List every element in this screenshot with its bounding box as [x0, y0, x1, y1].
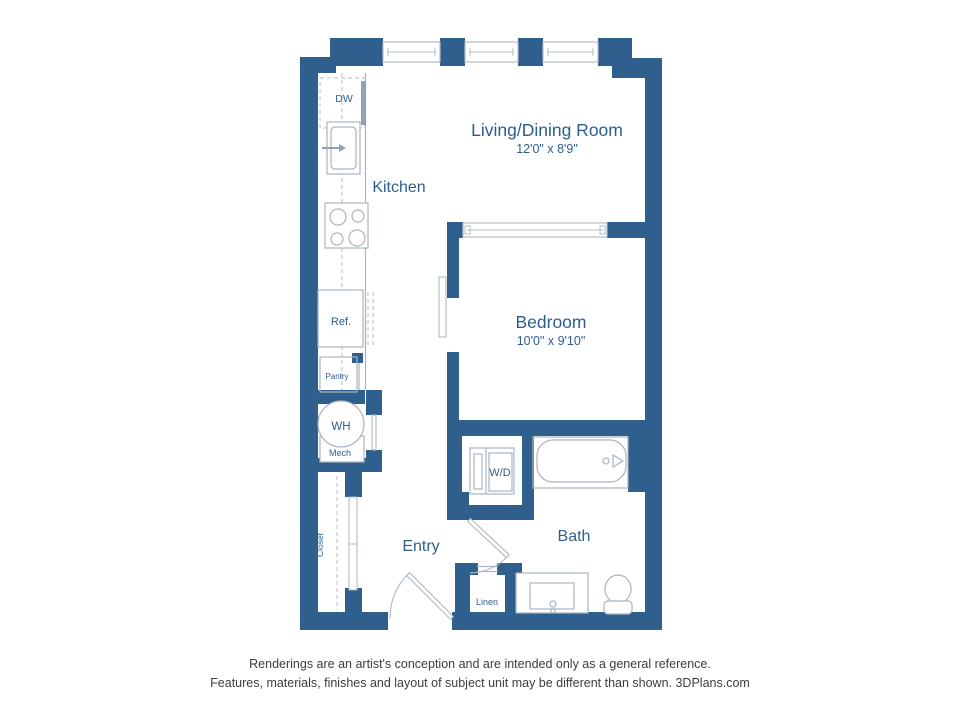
entry-label: Entry [402, 538, 439, 555]
kitchen-fixtures [318, 73, 373, 392]
entry-door-swing-arc [390, 574, 408, 618]
wall-window-pier-2 [518, 38, 543, 66]
wall-bath-pilaster [628, 420, 662, 492]
linen-closet [477, 567, 498, 572]
wall-wd-right [522, 436, 534, 506]
wall-bath-door-stub [447, 492, 469, 520]
wall-bottom-right [452, 612, 662, 630]
wall-bedroom-window-stub-left [447, 222, 463, 238]
wall-linen-left [455, 563, 470, 612]
bath-label: Bath [558, 528, 591, 545]
entry-door-leaf [407, 573, 454, 620]
toilet [604, 575, 632, 614]
washer-dryer-label: W/D [489, 467, 510, 479]
mech-label: Mech [329, 448, 351, 458]
closet-label: Closet [315, 532, 325, 557]
linen-label: Linen [476, 597, 498, 607]
window-living-2 [465, 42, 518, 62]
water-heater-label: WH [331, 421, 350, 433]
tub-faucet-icon [603, 458, 609, 464]
closet-sliding-door-2 [349, 544, 357, 590]
wall-right [645, 58, 662, 630]
floorplan-drawing: Living/Dining Room 12'0" x 8'9" Kitchen … [0, 0, 960, 720]
bedroom-pocket-door [439, 277, 446, 337]
window-living-3 [543, 42, 598, 62]
living-room-dims: 12'0" x 8'9" [516, 142, 578, 156]
window-bedroom [463, 223, 607, 237]
stove [325, 203, 368, 248]
disclaimer-line-2: Features, materials, finishes and layout… [210, 676, 750, 690]
wall-bay-left [330, 38, 383, 66]
wall-bottom-left [300, 612, 388, 630]
floorplan-page: Living/Dining Room 12'0" x 8'9" Kitchen … [0, 0, 960, 720]
wall-closet-stub-top [345, 472, 362, 497]
window-living-1 [383, 42, 440, 62]
kitchen-label: Kitchen [372, 179, 425, 196]
disclaimer-line-1: Renderings are an artist's conception an… [249, 657, 711, 671]
dishwasher-label: DW [335, 93, 353, 105]
bedroom-dims: 10'0" x 9'10" [517, 334, 586, 348]
pantry-label: Pantry [325, 372, 348, 381]
wall-bedroom-window-stub-right [607, 222, 662, 238]
vanity-sink [516, 573, 588, 613]
living-room-label: Living/Dining Room [471, 120, 623, 140]
wall-mech-right-upper [366, 390, 382, 415]
refrigerator-label: Ref. [331, 316, 351, 328]
disclaimer: Renderings are an artist's conception an… [210, 657, 750, 690]
bath-door-leaf [468, 519, 509, 558]
kitchen-sink [322, 122, 360, 174]
bedroom-label: Bedroom [515, 312, 586, 332]
tub-spout-icon [613, 455, 623, 467]
wall-window-pier-1 [440, 38, 465, 66]
room-labels: Living/Dining Room 12'0" x 8'9" Kitchen … [315, 93, 623, 607]
wall-bedroom-left-upper [447, 238, 459, 298]
closet-sliding-door-1 [349, 497, 357, 544]
bathtub [533, 437, 628, 488]
entry-door [390, 573, 453, 620]
wall-closet-stub-bottom [345, 588, 362, 614]
mech-door [372, 415, 376, 450]
